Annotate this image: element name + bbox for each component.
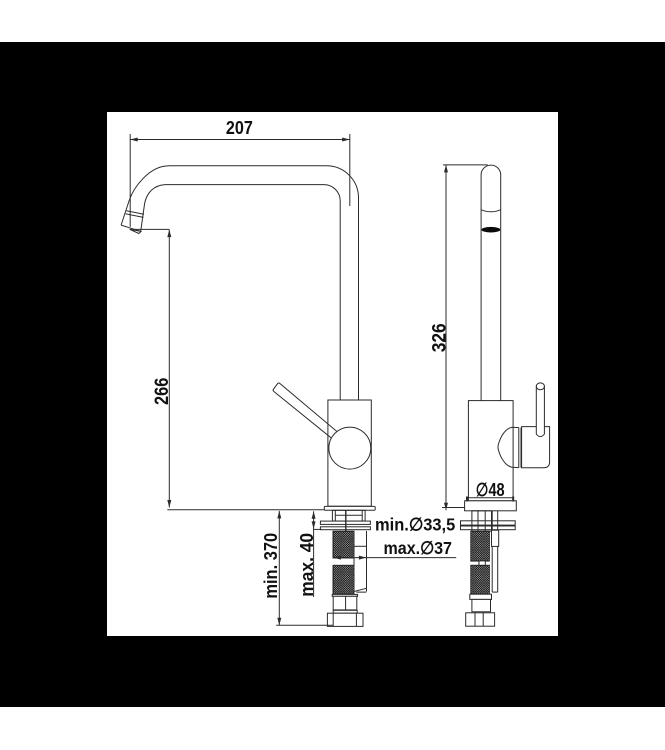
svg-text:max. 40: max. 40 — [297, 533, 318, 597]
svg-text:max.∅37: max.∅37 — [384, 538, 452, 558]
svg-text:min. 370: min. 370 — [260, 533, 281, 599]
svg-text:min.∅33,5: min.∅33,5 — [375, 514, 456, 535]
svg-text:207: 207 — [226, 117, 253, 138]
svg-text:266: 266 — [151, 378, 173, 405]
svg-text:326: 326 — [427, 323, 449, 352]
svg-text:∅48: ∅48 — [476, 479, 505, 500]
